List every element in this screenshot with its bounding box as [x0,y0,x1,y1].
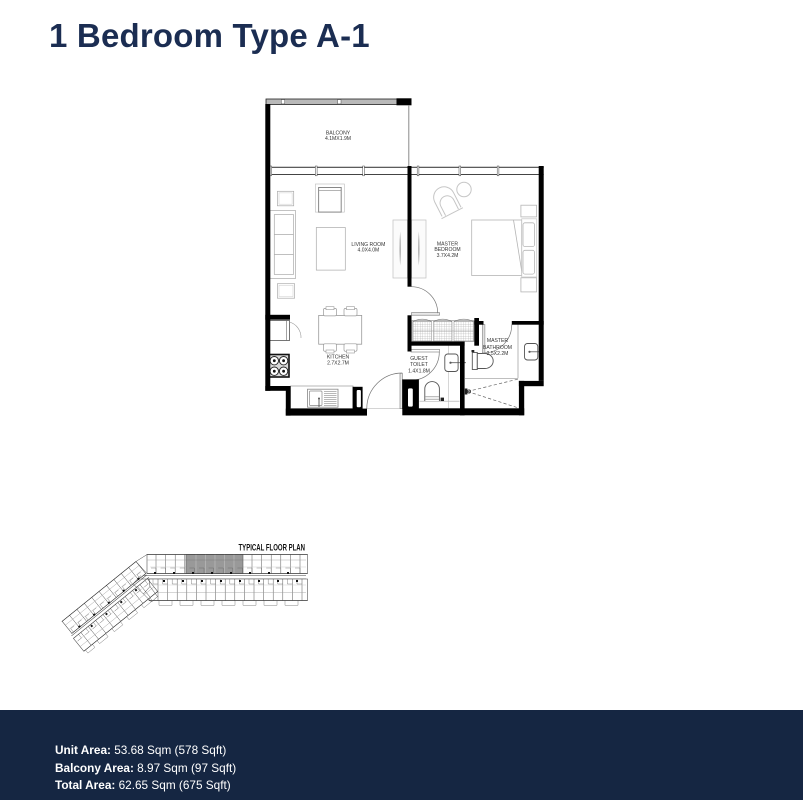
svg-text:TYPICAL FLOOR PLAN: TYPICAL FLOOR PLAN [239,543,306,553]
svg-text:1.4X1.8M: 1.4X1.8M [408,368,430,374]
svg-text:4.1MX1.9M: 4.1MX1.9M [325,136,351,142]
svg-text:3.7X4.2M: 3.7X4.2M [437,253,459,259]
svg-text:TOILET: TOILET [410,362,428,368]
svg-text:2.7X2.7M: 2.7X2.7M [327,361,349,367]
svg-text:BATHROOM: BATHROOM [483,345,512,351]
svg-text:2.5X2.2M: 2.5X2.2M [487,351,509,357]
svg-text:4.0X4.0M: 4.0X4.0M [357,248,379,254]
svg-text:MASTER: MASTER [487,338,509,344]
svg-text:GUEST: GUEST [410,356,428,362]
